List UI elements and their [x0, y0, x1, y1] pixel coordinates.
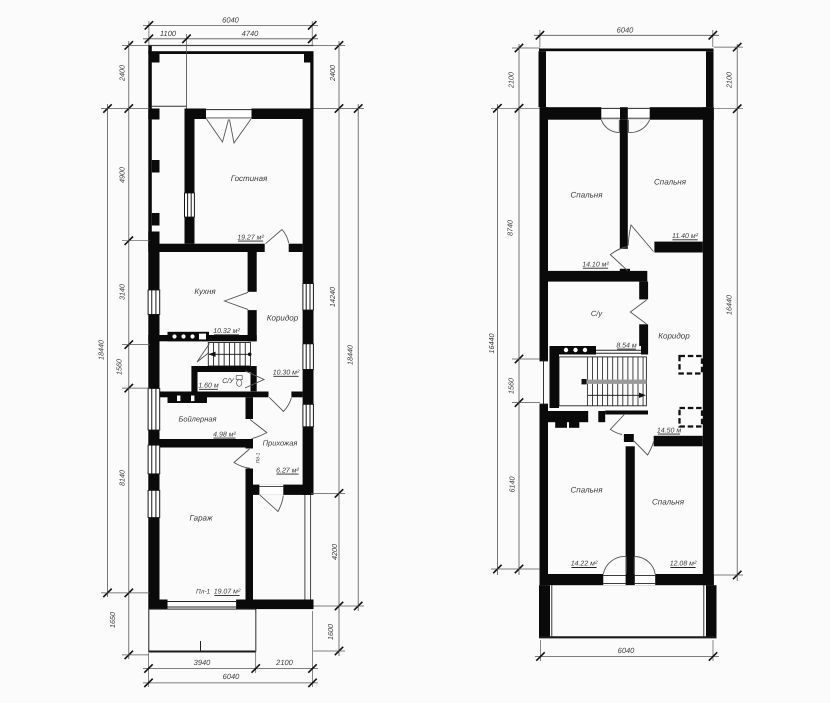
svg-text:14.22 м²: 14.22 м² [571, 561, 598, 568]
svg-text:Пд-1: Пд-1 [256, 452, 262, 463]
svg-text:4.98 м²: 4.98 м² [213, 431, 236, 438]
svg-text:6040: 6040 [617, 25, 635, 34]
svg-text:14.50 м: 14.50 м [657, 427, 681, 434]
svg-text:6140: 6140 [508, 477, 517, 493]
svg-text:14240: 14240 [328, 287, 337, 307]
svg-text:4900: 4900 [118, 167, 127, 183]
svg-text:12.08 м²: 12.08 м² [670, 561, 697, 568]
svg-text:2100: 2100 [725, 72, 734, 89]
svg-text:10.30 м²: 10.30 м² [273, 370, 300, 377]
svg-text:6.27 м²: 6.27 м² [276, 467, 299, 474]
svg-text:1650: 1650 [108, 612, 117, 628]
svg-text:18440: 18440 [346, 345, 355, 365]
svg-text:16440: 16440 [725, 295, 734, 315]
svg-text:3940: 3940 [194, 658, 212, 667]
svg-text:Кухня: Кухня [194, 287, 216, 296]
svg-text:2100: 2100 [275, 658, 294, 667]
svg-text:19.07 м²: 19.07 м² [214, 589, 241, 596]
svg-text:2100: 2100 [507, 72, 516, 89]
svg-text:1100: 1100 [160, 29, 177, 38]
svg-text:Спальня: Спальня [571, 190, 604, 199]
svg-text:3140: 3140 [118, 284, 127, 300]
svg-text:2400: 2400 [118, 65, 127, 82]
svg-text:8740: 8740 [506, 220, 515, 236]
svg-text:Коридор: Коридор [267, 314, 299, 323]
svg-text:6040: 6040 [222, 16, 240, 25]
svg-text:1.60 м: 1.60 м [198, 383, 219, 390]
svg-text:8140: 8140 [118, 470, 127, 486]
svg-text:2400: 2400 [328, 65, 337, 82]
svg-text:Коридор: Коридор [658, 332, 690, 341]
svg-text:1560: 1560 [115, 359, 124, 375]
svg-text:4200: 4200 [330, 544, 339, 560]
svg-text:16440: 16440 [487, 334, 496, 354]
svg-text:Прихожая: Прихожая [263, 439, 298, 448]
svg-text:1560: 1560 [507, 378, 516, 394]
svg-text:14.10 м²: 14.10 м² [582, 261, 609, 268]
svg-text:4740: 4740 [242, 29, 260, 38]
svg-text:Спальня: Спальня [652, 498, 685, 507]
svg-text:Бойлерная: Бойлерная [178, 415, 216, 424]
svg-text:8.54 м: 8.54 м [616, 342, 637, 349]
svg-text:10.32 м²: 10.32 м² [213, 328, 240, 335]
svg-text:6040: 6040 [618, 646, 636, 655]
svg-text:Гостиная: Гостиная [231, 174, 268, 183]
svg-text:С/У: С/У [222, 377, 235, 385]
svg-text:18440: 18440 [97, 340, 106, 360]
svg-text:Спальня: Спальня [571, 485, 604, 494]
svg-text:1600: 1600 [326, 624, 335, 640]
svg-text:11.40 м²: 11.40 м² [672, 233, 699, 240]
svg-text:Спальня: Спальня [654, 177, 687, 186]
svg-text:С/у: С/у [591, 309, 604, 318]
svg-text:Пл-1: Пл-1 [196, 589, 211, 596]
svg-text:6040: 6040 [223, 672, 241, 681]
svg-text:Гараж: Гараж [190, 514, 213, 523]
svg-text:19.27 м²: 19.27 м² [237, 234, 264, 241]
